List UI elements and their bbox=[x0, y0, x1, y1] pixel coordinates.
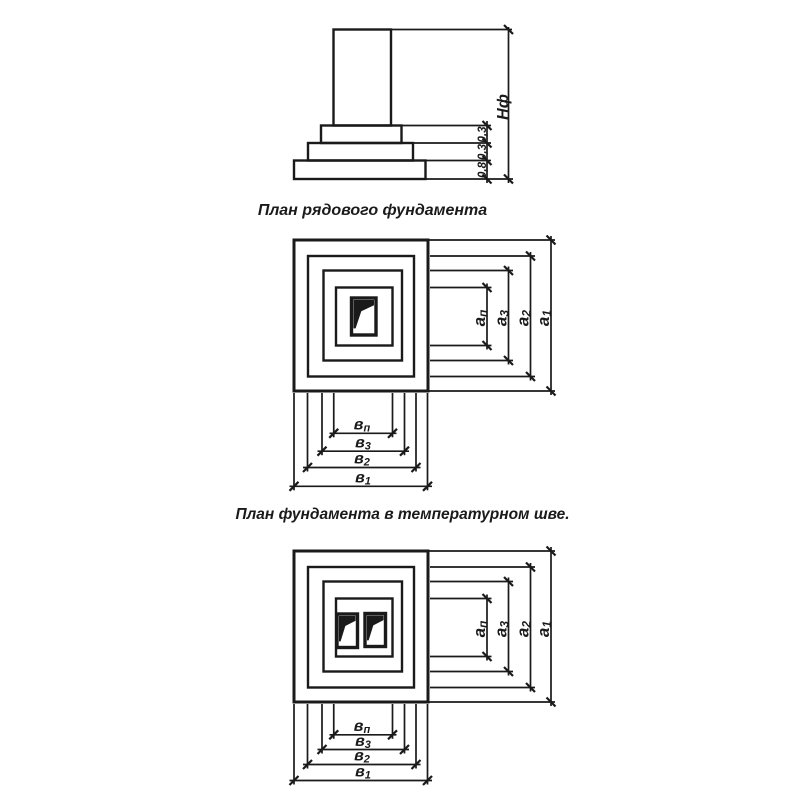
svg-text:0,3: 0,3 bbox=[477, 143, 489, 160]
svg-text:0,3: 0,3 bbox=[477, 126, 489, 143]
svg-text:План рядового фундамента: План рядового фундамента bbox=[258, 202, 487, 219]
svg-text:0,8: 0,8 bbox=[477, 161, 489, 178]
svg-text:Нф: Нф bbox=[495, 94, 512, 120]
svg-text:План фундамента в температурно: План фундамента в температурном шве. bbox=[235, 506, 569, 523]
